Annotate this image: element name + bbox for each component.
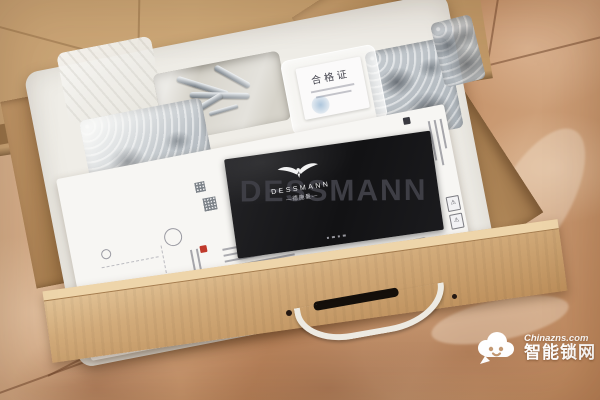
qr-code-icon <box>202 196 217 211</box>
certificate-title: 合格证 <box>296 62 364 89</box>
warning-triangle-icon: ⚠ <box>446 195 462 212</box>
panel-footer-marks <box>314 222 356 245</box>
handle-hole <box>286 310 292 316</box>
screw <box>213 64 251 89</box>
cloud-mascot-icon <box>474 330 518 366</box>
certificate-stamp <box>310 94 331 115</box>
warning-triangle-icon: ⚠ <box>449 213 465 230</box>
qr-code-icon <box>194 181 206 193</box>
site-watermark: Chinazns.com 智能锁网 <box>474 330 596 366</box>
watermark-site-text: Chinazns.com <box>524 334 596 344</box>
screw <box>176 76 229 98</box>
watermark-cn-text: 智能锁网 <box>524 344 596 362</box>
label-logo-mark-icon <box>403 117 411 125</box>
photo-opened-smart-lock-box: 合格证 <box>0 0 600 400</box>
screw <box>209 104 239 116</box>
certificate-card: 合格证 <box>295 56 370 120</box>
dessmann-eagle-icon <box>276 160 322 182</box>
template-circle <box>163 227 184 248</box>
handle-hole <box>452 294 457 299</box>
template-circle <box>100 248 112 260</box>
template-dashed-line <box>102 256 159 268</box>
